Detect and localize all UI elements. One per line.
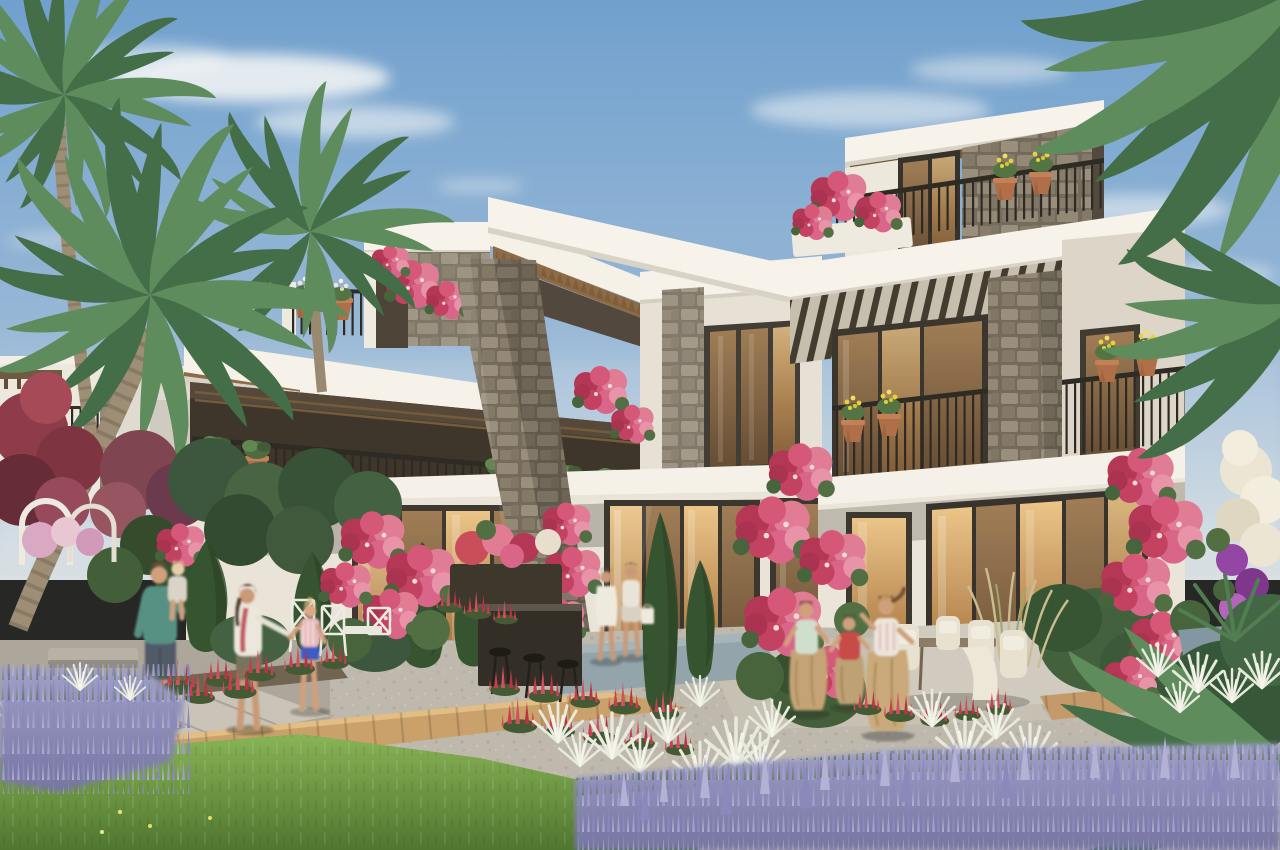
warm-light-overlay (0, 0, 1280, 850)
architectural-rendering (0, 0, 1280, 850)
